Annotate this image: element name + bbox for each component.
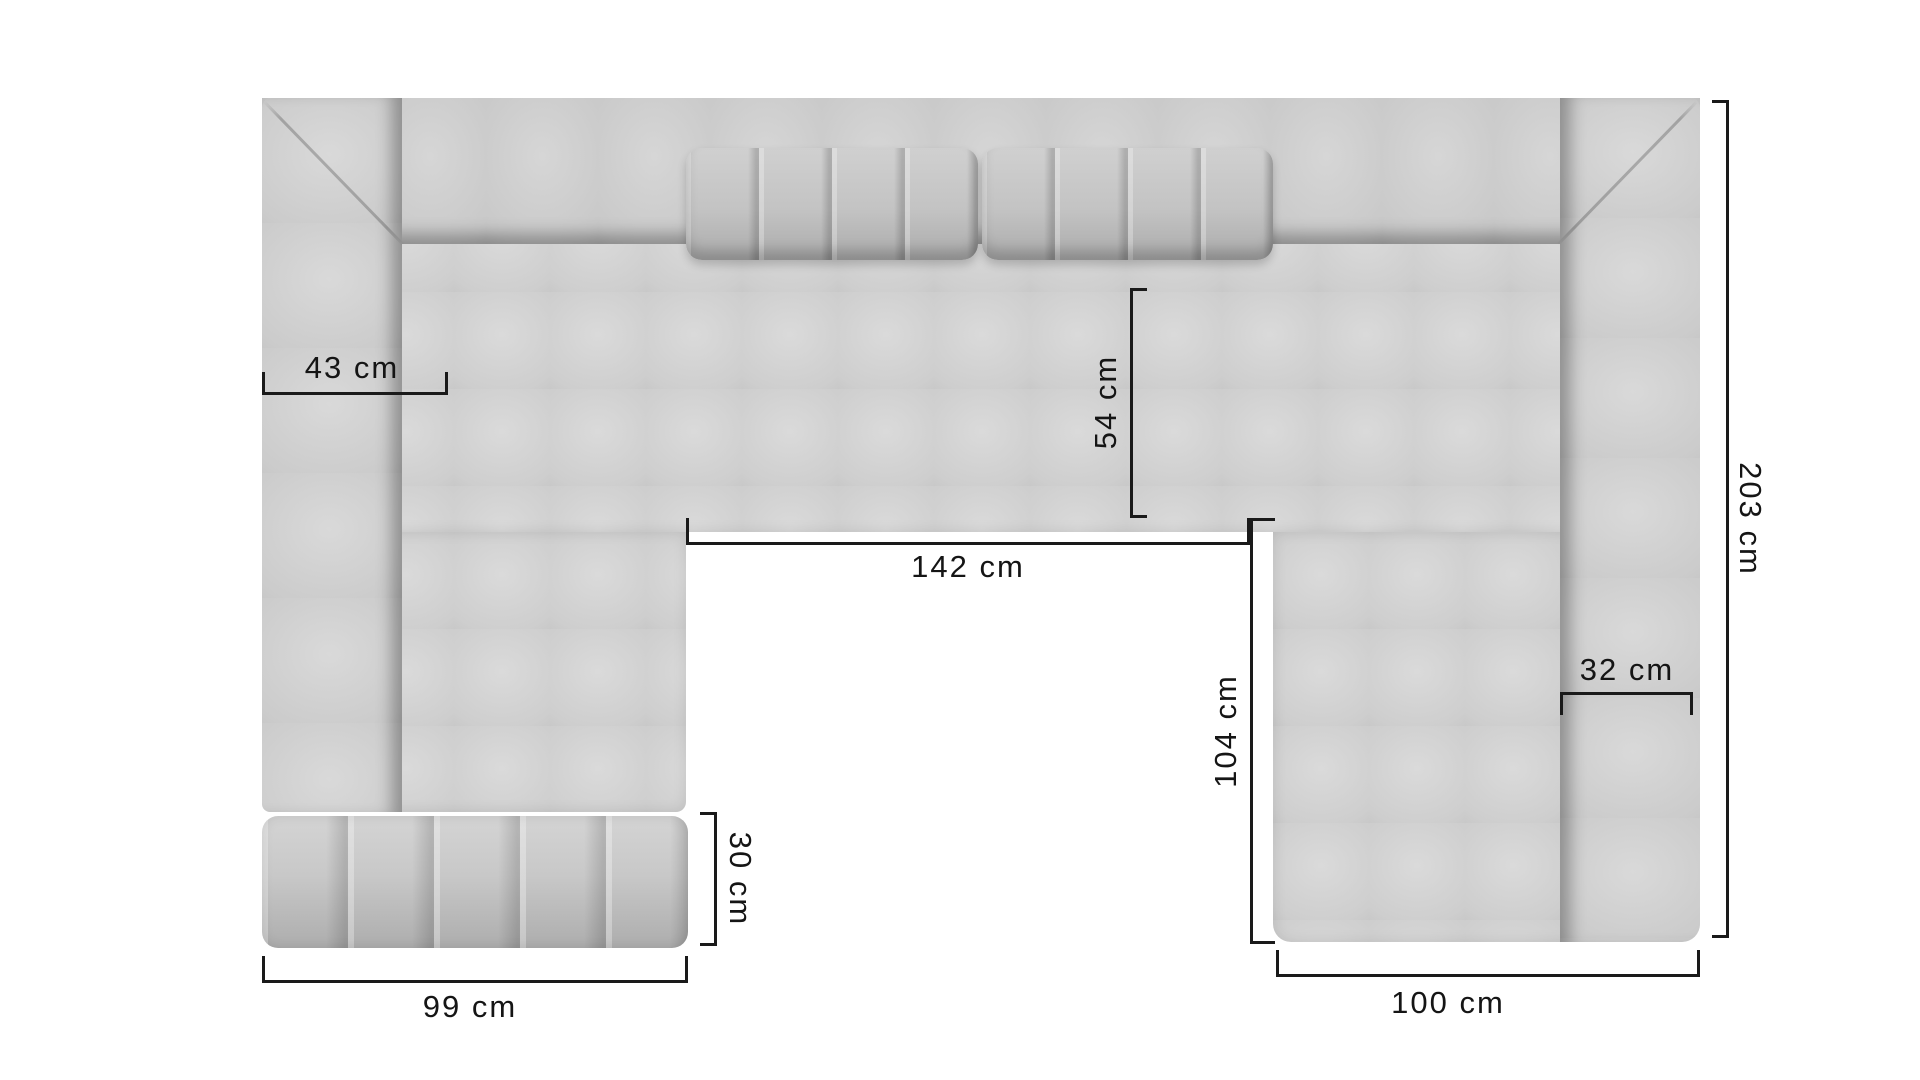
dim-line-inner-opening-width [686, 518, 1250, 545]
dim-label-right-armrest-width: 32 cm [1580, 652, 1674, 688]
dim-line-total-depth [1712, 100, 1729, 938]
dim-label-inner-opening-width: 142 cm [911, 549, 1025, 585]
dim-label-ottoman-depth: 30 cm [722, 832, 758, 926]
dim-label-left-armrest-width: 43 cm [305, 350, 399, 386]
sofa-top-backrest [262, 98, 1700, 244]
dim-label-left-module-width: 99 cm [423, 989, 517, 1025]
headrest-cushion-right [982, 148, 1273, 260]
sofa-right-backrest [1560, 98, 1700, 942]
dim-line-left-module-width [262, 956, 688, 983]
sofa-ottoman [262, 816, 688, 948]
dim-line-right-module-width [1276, 950, 1700, 977]
dim-label-total-depth: 203 cm [1732, 462, 1768, 576]
dim-line-right-armrest-width [1560, 692, 1693, 715]
dim-label-seat-depth: 54 cm [1088, 355, 1124, 449]
dim-line-ottoman-depth [700, 812, 717, 946]
dim-line-right-inner-depth [1250, 518, 1275, 944]
dim-label-right-inner-depth: 104 cm [1208, 674, 1244, 788]
sofa-dimension-diagram: 43 cm 54 cm 142 cm 104 cm 32 cm 203 cm 3… [0, 0, 1920, 1080]
sofa-left-backrest [262, 98, 402, 812]
dim-line-seat-depth [1130, 288, 1147, 518]
dim-label-right-module-width: 100 cm [1391, 985, 1505, 1021]
headrest-cushion-left [686, 148, 978, 260]
